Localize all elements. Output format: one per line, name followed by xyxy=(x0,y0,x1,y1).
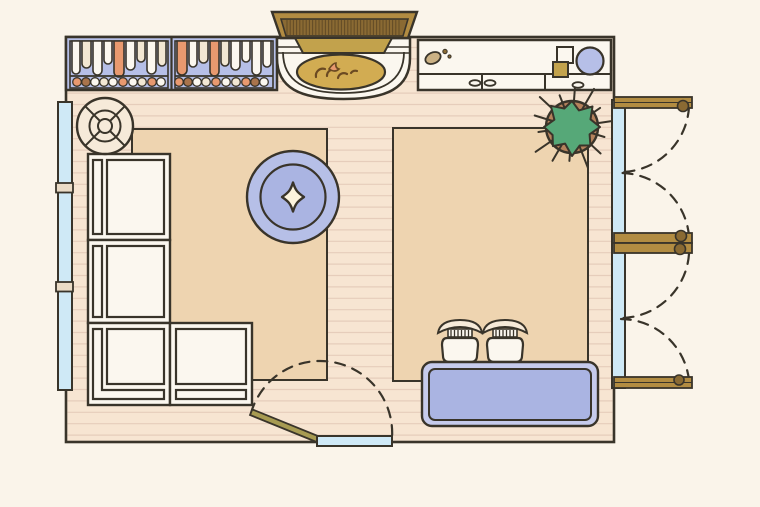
stool-seat xyxy=(487,338,523,362)
sofa-back-right xyxy=(176,390,246,399)
counter-tile-gold xyxy=(553,62,568,77)
sofa-cushion-corner xyxy=(107,329,164,384)
door-knob-3 xyxy=(675,244,686,255)
fire-basin xyxy=(297,55,385,90)
window-mullion-2 xyxy=(56,282,73,292)
fireplace xyxy=(272,12,417,99)
round-ottoman xyxy=(247,151,339,243)
drawer-handle-2 xyxy=(485,80,496,86)
sofa-armrest-mid xyxy=(93,246,102,317)
floor-plan-illustration xyxy=(0,0,760,507)
door-knob-4 xyxy=(674,375,684,385)
drawer-handle-3 xyxy=(573,82,584,88)
coffee-table xyxy=(422,362,598,426)
table-top xyxy=(429,369,591,420)
sideboard-counter xyxy=(418,40,611,90)
hearth-step xyxy=(295,38,392,53)
sofa-cushion-mid xyxy=(107,246,164,317)
window-mullion-1 xyxy=(56,183,73,193)
counter-tile-white xyxy=(557,47,573,63)
bookshelf xyxy=(66,37,277,90)
counter-pebble-2 xyxy=(448,55,451,58)
door-knob-2 xyxy=(676,231,687,242)
counter-sink-bowl xyxy=(577,48,604,75)
left-wall-window xyxy=(56,102,73,390)
stool-1 xyxy=(438,320,482,362)
sofa-cushion-right xyxy=(176,329,246,384)
door-threshold xyxy=(317,436,392,446)
sofa-armrest-top xyxy=(93,160,102,234)
stool-seat xyxy=(442,338,478,362)
stool-2 xyxy=(483,320,527,362)
counter-pebble-1 xyxy=(443,49,447,53)
drawer-handle-1 xyxy=(470,80,481,86)
door-knob-1 xyxy=(678,101,689,112)
round-side-table xyxy=(77,98,133,154)
window-glass-left xyxy=(58,102,72,390)
floor-plan-canvas xyxy=(0,0,760,507)
sofa-cushion-top xyxy=(107,160,164,234)
